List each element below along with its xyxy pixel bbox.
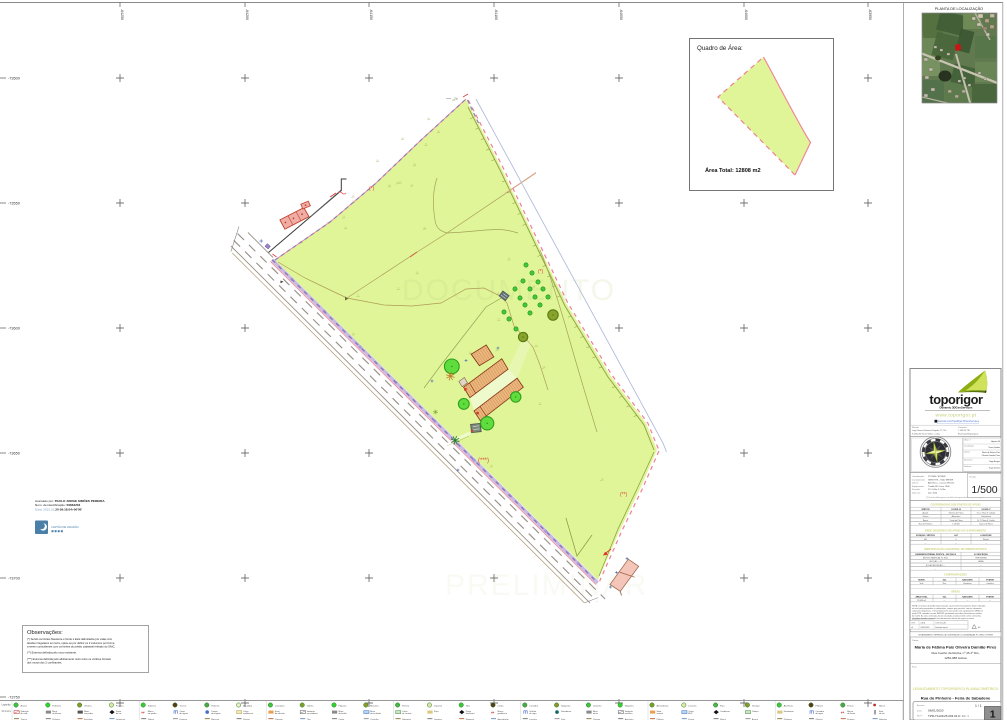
svg-text:Equipamento:: Equipamento: [912, 485, 925, 488]
svg-text:de correio: de correio [402, 712, 412, 715]
svg-text:-73700: -73700 [8, 576, 20, 580]
svg-text:Pinheiro: Pinheiro [211, 704, 220, 707]
svg-text:Marco: Marco [879, 704, 886, 707]
svg-text:Tronco: Tronco [180, 704, 188, 707]
svg-text:cadastrais disponíveis. O leva: cadastrais disponíveis. O levantamento f… [912, 609, 983, 612]
svg-text:misto: misto [593, 712, 599, 715]
svg-text:Maria de Fátima Pais: Maria de Fátima Pais [982, 451, 1000, 454]
svg-text:Área Total: 12808 m2: Área Total: 12808 m2 [705, 167, 761, 174]
svg-text:facebook.com/TopoRigor.3DGeoSe: facebook.com/TopoRigor.3DGeoServices [937, 420, 980, 423]
svg-text:Limoeiro: Limoeiro [593, 704, 602, 707]
svg-text:N. T. Plano F. Cartão: N. T. Plano F. Cartão [977, 519, 994, 522]
svg-text:Assunto:: Assunto: [917, 704, 925, 707]
svg-text:Data Lev.:: Data Lev.: [912, 492, 921, 495]
svg-text:de trânsito: de trânsito [275, 712, 286, 715]
svg-text:-63950: -63950 [868, 9, 872, 20]
svg-text:Oliveira Damião Pires: Oliveira Damião Pires [982, 454, 1000, 457]
svg-text:Quadro de Área:: Quadro de Área: [697, 45, 743, 52]
svg-text:Observações:: Observações: [27, 630, 63, 636]
svg-text:a serem coincidentes com os li: a serem coincidentes com os limites do p… [27, 644, 116, 648]
svg-text:—: — [935, 568, 937, 570]
svg-text:DESCRIÇÃO: DESCRIÇÃO [936, 621, 947, 624]
svg-text:Laranjeira: Laranjeira [275, 704, 286, 707]
svg-text:Data: 2021.01.20 09:18:04+00'0: Data: 2021.01.20 09:18:04+00'00' [35, 507, 82, 511]
svg-text:Tília: Tília [466, 705, 471, 707]
svg-text:##: ## [491, 711, 495, 715]
svg-text:20/01/2021: 20/01/2021 [921, 627, 930, 629]
svg-text:GNSS RTK – Rede SERVIR: GNSS RTK – Rede SERVIR [928, 479, 954, 481]
svg-text:Torres Vedras: Torres Vedras [988, 446, 1000, 449]
svg-text:NASCENTE: NASCENTE [962, 578, 973, 581]
svg-text:Localização:: Localização: [964, 445, 974, 448]
svg-text:53: 53 [352, 196, 355, 198]
svg-text:—: — [955, 542, 957, 544]
svg-text:LEVANTAMENTO TOPOGRÁFICO PLANI: LEVANTAMENTO TOPOGRÁFICO PLANIALTIMÉTRIC… [913, 686, 999, 691]
svg-text:Árvore: Árvore [21, 704, 28, 707]
svg-text:QUADRO DE REVISÕES: QUADRO DE REVISÕES [912, 617, 934, 620]
svg-text:-73650: -73650 [8, 451, 20, 455]
svg-text:CADERNETA PREDIAL RÚSTICA - SE: CADERNETA PREDIAL RÚSTICA - SECÇÃO B [915, 553, 957, 556]
svg-text:Cliente:: Cliente: [912, 639, 919, 642]
svg-text:Sumidouro: Sumidouro [561, 710, 572, 713]
svg-text:Faia: Faia [720, 705, 725, 707]
svg-text:Contactos:: Contactos: [958, 426, 968, 429]
svg-text:de blocos: de blocos [52, 713, 61, 715]
svg-text:-64050: -64050 [619, 9, 623, 20]
svg-text:(***) Extrema definida pelo al: (***) Extrema definida pelo alinhamento … [27, 657, 111, 661]
svg-text:de luz: de luz [116, 713, 122, 715]
svg-text:—: — [985, 542, 987, 544]
svg-text:Coordenadas:: Coordenadas: [912, 476, 925, 478]
svg-text:de 0.02m. As áreas indicadas f: de 0.02m. As áreas indicadas foram calcu… [912, 615, 982, 618]
svg-text:Cristó do Plano: Cristó do Plano [950, 519, 963, 522]
svg-text:Obra n.º:: Obra n.º: [964, 439, 972, 442]
svg-text:Legenda: Legenda [2, 705, 12, 707]
svg-text:vertical: vertical [657, 712, 664, 715]
svg-text:Fruteira: Fruteira [116, 704, 124, 707]
svg-text:NASCENTE: NASCENTE [962, 595, 973, 598]
svg-text:(*): (*) [369, 186, 375, 192]
svg-text:Plátano: Plátano [816, 704, 824, 707]
svg-text:Datum:: Datum: [912, 482, 919, 485]
svg-text:Candeeiro: Candeeiro [720, 710, 730, 713]
svg-text:Ortométrico: Ortométrico [981, 515, 991, 518]
svg-text:Agosto-20: Agosto-20 [991, 440, 1000, 443]
svg-text:-64250: -64250 [120, 9, 124, 20]
svg-text:Trimble R6 / Leica TS06: Trimble R6 / Leica TS06 [928, 486, 950, 488]
svg-text:Fol.: 1: Fol.: 1 [962, 715, 969, 718]
svg-text:Fontanário: Fontanário [784, 710, 795, 713]
svg-text:Levantamento:: Levantamento: [912, 478, 926, 481]
svg-text:Macieira: Macieira [370, 704, 379, 707]
svg-text:Símbolos: Símbolos [2, 711, 12, 713]
svg-text:1 / 1: 1 / 1 [975, 704, 982, 708]
svg-text:1: 1 [990, 709, 996, 720]
svg-text:Caleira: Caleira [752, 710, 759, 713]
svg-text:(*): (*) [538, 269, 544, 275]
svg-text:Nogueira: Nogueira [625, 704, 635, 707]
svg-text:Datum do Plano: Datum do Plano [979, 522, 993, 525]
svg-text:Herdeiros: Herdeiros [963, 582, 971, 585]
svg-text:REDE GEODÉSICA DE APOIO AO LEV: REDE GEODÉSICA DE APOIO AO LEVANTAMENTO [925, 529, 986, 532]
svg-text:Época: Época [923, 519, 929, 522]
svg-text:Desenhou:: Desenhou: [964, 460, 973, 462]
svg-text:(**): (**) [620, 492, 628, 498]
svg-text:de água: de água [816, 713, 824, 715]
svg-text:Carvalho: Carvalho [529, 704, 539, 707]
svg-text:de incêndio: de incêndio [370, 713, 381, 715]
svg-text:Amendoeira: Amendoeira [657, 704, 670, 707]
svg-text:Ref.ª:: Ref.ª: [917, 715, 923, 718]
svg-text:em pedra: em pedra [148, 712, 158, 715]
svg-text:de rede: de rede [21, 712, 29, 715]
svg-text:-64100: -64100 [494, 9, 498, 20]
svg-text:(*) C. Plano F. Cótada: (*) C. Plano F. Cótada [977, 512, 996, 515]
svg-text:Palmeira: Palmeira [52, 704, 61, 707]
svg-text:Sobreiro: Sobreiro [148, 704, 157, 707]
svg-text:DOCUMENTO: DOCUMENTO [402, 274, 616, 307]
svg-text:—: — [925, 542, 927, 544]
svg-text:dos muros dos 2 confinantes.: dos muros dos 2 confinantes. [27, 661, 62, 665]
svg-text:##: ## [141, 711, 145, 715]
svg-text:SECÇÃO — B: SECÇÃO — B [929, 560, 942, 563]
svg-text:Rua do Pinheiro - Feira de Sab: Rua do Pinheiro - Feira de Sabadene [921, 695, 991, 700]
svg-text:www.toporigor.pt: www.toporigor.pt [936, 413, 977, 419]
svg-text:-73550: -73550 [8, 201, 20, 205]
svg-text:(**) Extrema definida pelo mur: (**) Extrema definida pelo muro existent… [27, 651, 77, 655]
svg-text:NOTA: Os limites do prédio rep: NOTA: Os limites do prédio representados… [912, 604, 986, 607]
svg-text:de rega: de rega [529, 712, 537, 715]
svg-text:ÁREA: ÁREA [978, 560, 984, 563]
svg-text:Sistema de Plano: Sistema de Plano [949, 512, 964, 515]
svg-text:CONFRONTAÇÕES: CONFRONTAÇÕES [944, 574, 967, 577]
svg-text:-73600: -73600 [8, 326, 20, 330]
svg-text:1/500: 1/500 [971, 484, 997, 496]
svg-text:Precisão:: Precisão: [912, 488, 921, 491]
svg-text:CARTÃO DE CIDADÃO: CARTÃO DE CIDADÃO [51, 524, 79, 529]
svg-text:Maria de Fátima Pais Oliveira: Maria de Fátima Pais Oliveira Damião Pir… [915, 644, 998, 649]
svg-text:06/01/2020: 06/01/2020 [928, 709, 944, 713]
svg-text:-73750: -73750 [8, 695, 20, 699]
svg-text:Data:: Data: [917, 709, 923, 712]
svg-text:LEVANTAMENTO REFERIDO AO SISTE: LEVANTAMENTO REFERIDO AO SISTEMA DE COOR… [918, 633, 993, 636]
svg-text:2b: 2b [454, 97, 458, 101]
svg-text:Emissão inicial: Emissão inicial [936, 626, 948, 629]
svg-text:Tiago Borges: Tiago Borges [989, 460, 1000, 463]
svg-text:de via: de via [879, 713, 885, 715]
svg-text:EDP: EDP [688, 713, 693, 715]
svg-text:Rua do Pinheiro: Rua do Pinheiro [919, 522, 933, 525]
svg-text:em pedra: em pedra [84, 712, 94, 715]
svg-text:##: ## [841, 711, 845, 715]
svg-text:-73500: -73500 [8, 76, 20, 80]
svg-text:no local pelo proprietário e c: no local pelo proprietário e confirmados… [912, 607, 982, 610]
svg-text:1250-088 Lisboa: 1250-088 Lisboa [944, 656, 967, 660]
svg-text:Escala:: Escala: [970, 477, 977, 479]
svg-text:Rua Coelho da Rocha, nº 46 4º: Rua Coelho da Rocha, nº 46 4º Dto, [931, 651, 979, 655]
svg-text:Nº DESCRIÇÃO: Nº DESCRIÇÃO [974, 553, 988, 556]
svg-text:de betão: de betão [339, 712, 348, 715]
svg-text:Tiago Gomes: Tiago Gomes [989, 468, 1000, 470]
svg-text:Pereira: Pereira [402, 704, 410, 707]
svg-text:52: 52 [427, 118, 430, 120]
svg-text:Cliente:: Cliente: [964, 451, 971, 454]
svg-text:metálica: metálica [625, 712, 634, 715]
svg-text:Apoio1: Apoio1 [923, 512, 929, 515]
svg-text:T. 968 787 781: T. 968 787 781 [958, 430, 970, 432]
svg-text:Dez. 2020: Dez. 2020 [928, 493, 938, 495]
svg-text:de esgoto: de esgoto [211, 712, 221, 715]
svg-text:COORDENADAS DOS PONTOS DE APOI: COORDENADAS DOS PONTOS DE APOIO [930, 503, 980, 506]
svg-text:Freixo: Freixo [847, 704, 854, 707]
svg-text:de limite: de limite [847, 712, 856, 715]
svg-text:Email: geral@toporigor.pt: Email: geral@toporigor.pt [958, 432, 979, 435]
svg-text:Planalt.: Planalt. [983, 538, 990, 541]
svg-text:’: ’ [985, 391, 987, 398]
svg-text:FREGUESIA: FREGUESIA [976, 557, 988, 560]
svg-text:Cedro: Cedro [498, 704, 505, 707]
svg-text:-64000: -64000 [744, 9, 748, 20]
svg-text:Videira: Videira [307, 704, 315, 707]
svg-text:modo RTK, apoiado na rede SERV: modo RTK, apoiado na rede SERVIR, garant… [912, 612, 982, 615]
svg-text:Dynamic 3DGeoServices: Dynamic 3DGeoServices [940, 405, 973, 409]
svg-text:Oliveira: Oliveira [84, 704, 92, 707]
svg-text:Altimétrico: Altimétrico [952, 515, 961, 518]
svg-text:taludes irregulares em terra,: taludes irregulares em terra, optou-se p… [27, 641, 115, 645]
svg-text:1:10.000: 1:10.000 [952, 523, 959, 525]
svg-text:DATA: DATA [921, 621, 926, 624]
svg-text:Cipreste: Cipreste [434, 704, 443, 707]
svg-text:ÁREA TOTAL: ÁREA TOTAL [916, 595, 929, 598]
svg-text:—: — [980, 568, 982, 570]
svg-text:TPR-T1101/25.003.01.D: TPR-T1101/25.003.01.D [928, 714, 961, 718]
svg-text:ÁREAS: ÁREAS [951, 591, 960, 594]
svg-text:-64200: -64200 [245, 9, 249, 20]
svg-text:Largo General Humberto Delgado: Largo General Humberto Delgado, 17 2 Frt [912, 429, 947, 432]
svg-text:Choupo: Choupo [752, 705, 760, 707]
svg-text:telefónico: telefónico [466, 712, 476, 715]
svg-text:Azinheira: Azinheira [784, 704, 794, 707]
svg-text:Eucalipto: Eucalipto [243, 704, 253, 707]
svg-text:A3: A3 [978, 626, 980, 629]
svg-text:(*) Sendo os limites Nascente: (*) Sendo os limites Nascente e Norte e … [27, 637, 113, 641]
svg-text:IDENTIFICAÇÃO CADASTRAL DO PRÉ: IDENTIFICAÇÃO CADASTRAL DO PRÉDIO RÚSTIC… [924, 548, 987, 551]
svg-text:em madeira: em madeira [307, 712, 319, 715]
svg-text:—: — [967, 600, 969, 602]
svg-text:Altimétrico – Cascais Helmert: Altimétrico – Cascais Helmert [928, 482, 955, 485]
svg-text:(***): (***) [478, 458, 489, 464]
svg-text:multibanco: multibanco [243, 712, 254, 715]
svg-text:—: — [989, 600, 991, 602]
svg-text:P-2560-287 Torres Vedras - Lis: P-2560-287 Torres Vedras - Lisboa [912, 433, 940, 435]
svg-text:Poço: Poço [434, 711, 440, 713]
svg-text:Morada:: Morada: [912, 426, 919, 429]
svg-text:Salgueiro: Salgueiro [561, 704, 571, 707]
svg-text:geodésico: geodésico [498, 713, 508, 715]
svg-text:ESTAÇÃO / VÉRTICE: ESTAÇÃO / VÉRTICE [916, 534, 936, 537]
svg-text:Figueira: Figueira [339, 704, 348, 707]
svg-text:-64150: -64150 [369, 9, 373, 20]
svg-text:Loureiro: Loureiro [688, 704, 697, 707]
svg-text:XY: 0.02m Z: 0.03m: XY: 0.02m Z: 0.03m [928, 489, 946, 491]
svg-text:52: 52 [376, 160, 379, 162]
svg-text:52: 52 [401, 138, 404, 140]
svg-text:—: — [944, 600, 946, 602]
svg-text:Fase:: Fase: [912, 666, 917, 668]
svg-text:VÉRTICE: VÉRTICE [921, 508, 930, 511]
svg-text:Caminho: Caminho [986, 583, 994, 585]
svg-text:Datum: Datum [923, 515, 929, 518]
svg-text:ARTIGO MATRICIAL Nº 4621: ARTIGO MATRICIAL Nº 4621 [923, 557, 948, 560]
svg-text:de águas: de águas [180, 713, 189, 715]
svg-text:12.808 m2: 12.808 m2 [917, 600, 926, 602]
svg-text:PT-TM06 / ETRS89: PT-TM06 / ETRS89 [928, 476, 946, 478]
svg-text:Verificou:: Verificou: [964, 466, 972, 468]
svg-text:PLANTA DE LOCALIZAÇÃO: PLANTA DE LOCALIZAÇÃO [935, 6, 983, 11]
svg-text:Nº DA DESCRIÇÃO —: Nº DA DESCRIÇÃO — [926, 564, 945, 567]
